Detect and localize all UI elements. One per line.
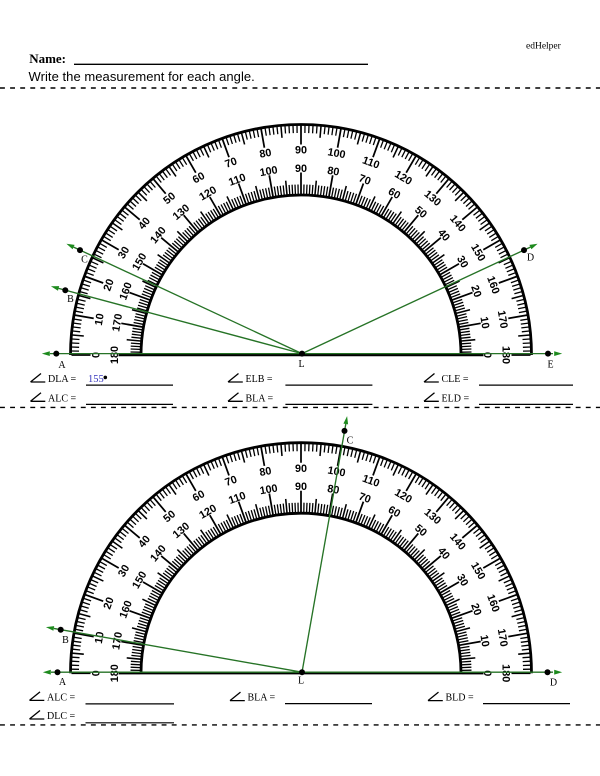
svg-text:C: C [347, 436, 354, 447]
svg-text:130: 130 [422, 506, 444, 527]
svg-text:160: 160 [117, 599, 134, 620]
svg-text:70: 70 [357, 491, 372, 506]
svg-text:20: 20 [101, 277, 116, 292]
svg-text:80: 80 [259, 465, 273, 479]
svg-text:100: 100 [259, 482, 279, 497]
svg-text:140: 140 [447, 531, 468, 553]
svg-text:30: 30 [116, 563, 132, 579]
svg-text:120: 120 [392, 168, 414, 187]
svg-text:155: 155 [88, 374, 104, 385]
svg-text:Write the measurement for each: Write the measurement for each angle. [29, 69, 255, 84]
svg-text:170: 170 [110, 313, 125, 333]
svg-text:60: 60 [386, 186, 402, 202]
svg-text:110: 110 [227, 172, 247, 189]
svg-text:C: C [81, 255, 88, 266]
svg-text:130: 130 [171, 520, 193, 541]
svg-text:20: 20 [468, 602, 483, 617]
svg-text:ELD =: ELD = [442, 393, 470, 404]
svg-text:L: L [298, 676, 304, 687]
svg-text:180: 180 [109, 346, 121, 364]
svg-text:90: 90 [295, 463, 307, 475]
svg-text:120: 120 [392, 487, 414, 506]
svg-text:140: 140 [148, 543, 169, 565]
svg-text:10: 10 [93, 313, 107, 327]
svg-text:170: 170 [495, 310, 510, 330]
svg-text:edHelper: edHelper [526, 42, 562, 52]
svg-text:BLA =: BLA = [246, 393, 274, 404]
svg-text:20: 20 [468, 284, 483, 299]
svg-text:30: 30 [454, 572, 470, 588]
svg-text:180: 180 [499, 346, 511, 364]
svg-text:110: 110 [361, 154, 381, 171]
svg-text:0: 0 [481, 670, 493, 676]
svg-text:ELB =: ELB = [246, 374, 273, 385]
svg-text:150: 150 [468, 242, 487, 264]
svg-text:0: 0 [481, 352, 493, 358]
svg-text:160: 160 [484, 275, 501, 296]
svg-text:100: 100 [327, 146, 347, 161]
svg-text:150: 150 [130, 251, 149, 273]
svg-text:180: 180 [109, 664, 121, 682]
svg-text:90: 90 [295, 481, 307, 493]
svg-text:30: 30 [116, 245, 132, 261]
svg-text:130: 130 [422, 188, 444, 209]
svg-text:60: 60 [386, 504, 402, 520]
svg-text:10: 10 [477, 316, 491, 330]
svg-text:Name:: Name: [29, 51, 66, 66]
svg-text:10: 10 [477, 634, 491, 648]
svg-text:BLA =: BLA = [248, 693, 276, 704]
svg-text:ALC =: ALC = [47, 692, 76, 703]
svg-text:ALC =: ALC = [48, 393, 77, 404]
svg-text:170: 170 [495, 628, 510, 648]
svg-text:130: 130 [171, 202, 193, 223]
svg-text:90: 90 [295, 145, 307, 157]
svg-text:DLC =: DLC = [47, 711, 76, 722]
svg-text:B: B [67, 294, 74, 305]
svg-text:180: 180 [499, 664, 511, 682]
svg-text:E: E [547, 360, 553, 371]
svg-text:60: 60 [191, 170, 207, 186]
svg-text:0: 0 [91, 670, 103, 676]
svg-text:80: 80 [326, 165, 340, 179]
svg-text:D: D [550, 678, 557, 689]
svg-text:150: 150 [468, 560, 487, 582]
svg-text:90: 90 [295, 163, 307, 175]
svg-text:0: 0 [91, 352, 103, 358]
svg-text:100: 100 [259, 164, 279, 179]
svg-text:20: 20 [101, 596, 116, 611]
svg-text:70: 70 [223, 474, 238, 489]
svg-text:110: 110 [227, 490, 247, 507]
svg-text:120: 120 [197, 184, 219, 203]
svg-text:BLD =: BLD = [446, 693, 475, 704]
svg-text:B: B [62, 635, 69, 646]
svg-text:70: 70 [223, 155, 238, 170]
svg-text:140: 140 [447, 213, 468, 235]
svg-text:30: 30 [454, 254, 470, 270]
svg-text:160: 160 [117, 281, 134, 302]
svg-text:150: 150 [130, 569, 149, 591]
svg-text:70: 70 [357, 172, 372, 187]
svg-text:160: 160 [484, 593, 501, 614]
svg-text:CLE =: CLE = [442, 374, 469, 385]
svg-text:110: 110 [361, 473, 381, 490]
svg-text:D: D [527, 253, 534, 264]
svg-text:140: 140 [148, 225, 169, 247]
svg-text:60: 60 [191, 488, 207, 504]
svg-text:L: L [298, 359, 304, 370]
svg-text:A: A [58, 360, 66, 371]
svg-text:DLA =: DLA = [48, 374, 77, 385]
svg-text:A: A [59, 677, 67, 688]
svg-text:120: 120 [197, 502, 219, 521]
svg-text:80: 80 [259, 147, 273, 161]
